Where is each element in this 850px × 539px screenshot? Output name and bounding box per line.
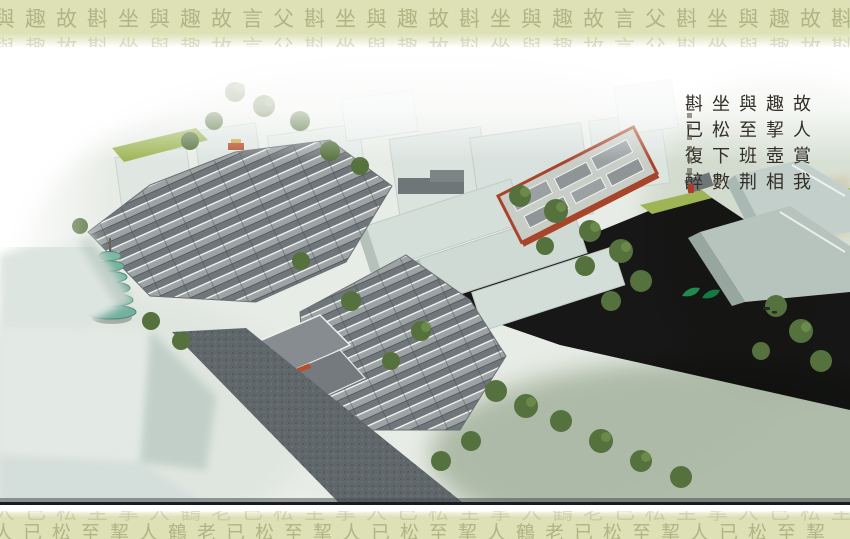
poem-column-5: 斟已復醉: [683, 94, 701, 198]
red-seal: [688, 184, 694, 193]
poem-column-2: 趣挈壺相: [764, 94, 782, 198]
bottom-band-text: 人已松至挈人鶴老已松至挈人已松至挈人鶴老已松至挈人已松至挈: [0, 518, 835, 539]
top-band-text: 與趣故斟坐與趣故言父斟坐與趣故斟坐與趣故言父斟坐與趣故斟坐: [0, 3, 850, 33]
top-character-band: 與趣故斟坐與趣故言父斟坐與趣故斟坐與趣故言父斟坐與趣故斟坐 與趣故斟坐與趣故言父…: [0, 0, 850, 47]
bottom-edge-line: [0, 502, 850, 505]
bottom-shadow: [0, 498, 850, 502]
artist-signature: [687, 113, 692, 177]
poem-column-3: 與至班荆: [737, 94, 755, 198]
poem-column-1: 故人賞我: [791, 94, 809, 198]
aerial-rendering: [0, 0, 850, 539]
left-fade: [0, 47, 110, 247]
poem-column-4: 坐松下數: [710, 94, 728, 198]
calligraphy-poem: 故人賞我 趣挈壺相 與至班荆 坐松下數 斟已復醉: [683, 94, 817, 254]
top-band-text-clipped: 與趣故斟坐與趣故言父斟坐與趣故斟坐與趣故言父斟坐與趣故斟坐: [0, 32, 850, 47]
architectural-rendering-poster: 與趣故斟坐與趣故言父斟坐與趣故斟坐與趣故言父斟坐與趣故斟坐 與趣故斟坐與趣故言父…: [0, 0, 850, 539]
bottom-character-band: 人已松至挈人鶴老已松至挈人已松至挈人鶴老已松至挈人已松至挈 人已松至挈人鶴老已松…: [0, 511, 850, 539]
